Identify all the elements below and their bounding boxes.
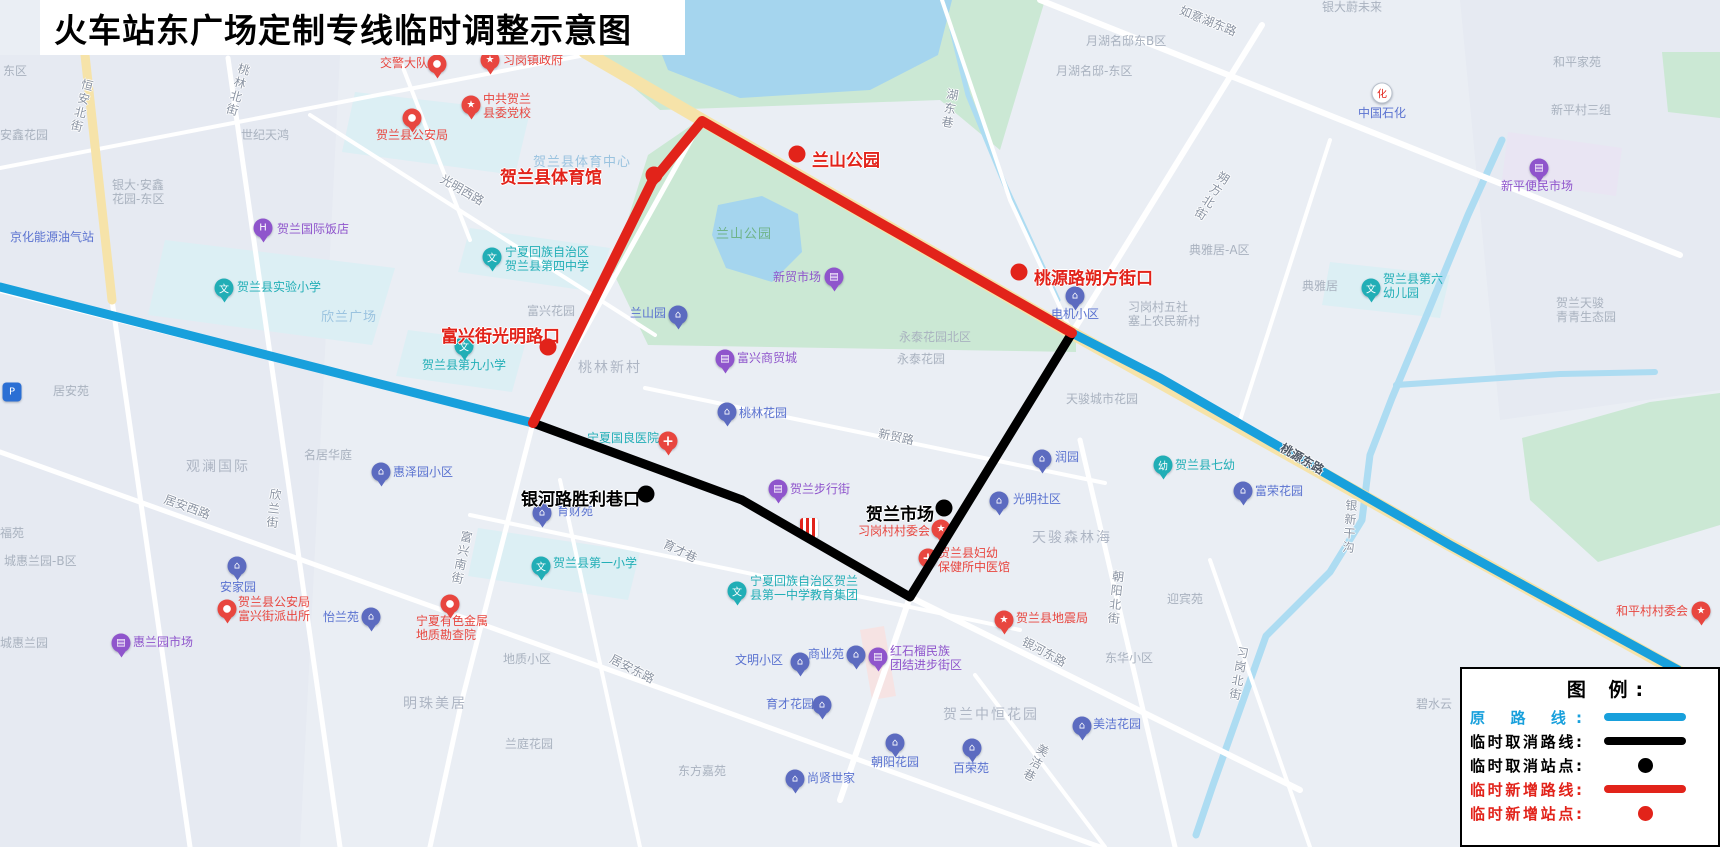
legend-row-symbol [1582,737,1708,745]
page-title: 火车站东广场定制专线临时调整示意图 [54,4,632,52]
legend-row-symbol [1582,758,1708,773]
station-dot [936,500,953,517]
station-label: 桃源路朔方街口 [1034,264,1153,289]
legend-row-symbol [1582,785,1708,793]
legend-row-label: 原 路 线: [1470,707,1582,728]
diagram-title-box: 火车站东广场定制专线临时调整示意图 [40,0,685,55]
station-dot [1011,264,1028,281]
station-label: 贺兰市场 [866,500,934,525]
legend-row: 临时新增路线: [1470,777,1708,801]
legend: 图 例: 原 路 线:临时取消路线:临时取消站点:临时新增路线:临时新增站点: [1460,667,1720,847]
station-dot [789,146,806,163]
legend-row: 临时取消站点: [1470,753,1708,777]
legend-row-symbol [1582,713,1708,721]
legend-row-label: 临时新增路线: [1470,779,1582,800]
legend-row: 临时取消路线: [1470,729,1708,753]
legend-title: 图 例: [1510,675,1708,702]
legend-row: 临时新增站点: [1470,801,1708,825]
map-canvas[interactable]: 东区安鑫花园银大·安鑫 花园-东区世纪天鸿月湖名邸东B区月湖名邸-东区银大蔚未来… [0,0,1720,847]
legend-row-label: 临时取消路线: [1470,731,1582,752]
station-label: 贺兰县体育馆 [500,163,602,188]
legend-row-label: 临时取消站点: [1470,755,1582,776]
legend-row-label: 临时新增站点: [1470,803,1582,824]
station-dot [638,486,655,503]
legend-row: 原 路 线: [1470,705,1708,729]
legend-row-symbol [1582,806,1708,821]
legend-rows: 原 路 线:临时取消路线:临时取消站点:临时新增路线:临时新增站点: [1470,705,1708,825]
station-dot [646,167,663,184]
station-label: 银河路胜利巷口 [521,485,640,510]
station-dot [540,339,557,356]
station-label: 兰山公园 [812,146,880,171]
